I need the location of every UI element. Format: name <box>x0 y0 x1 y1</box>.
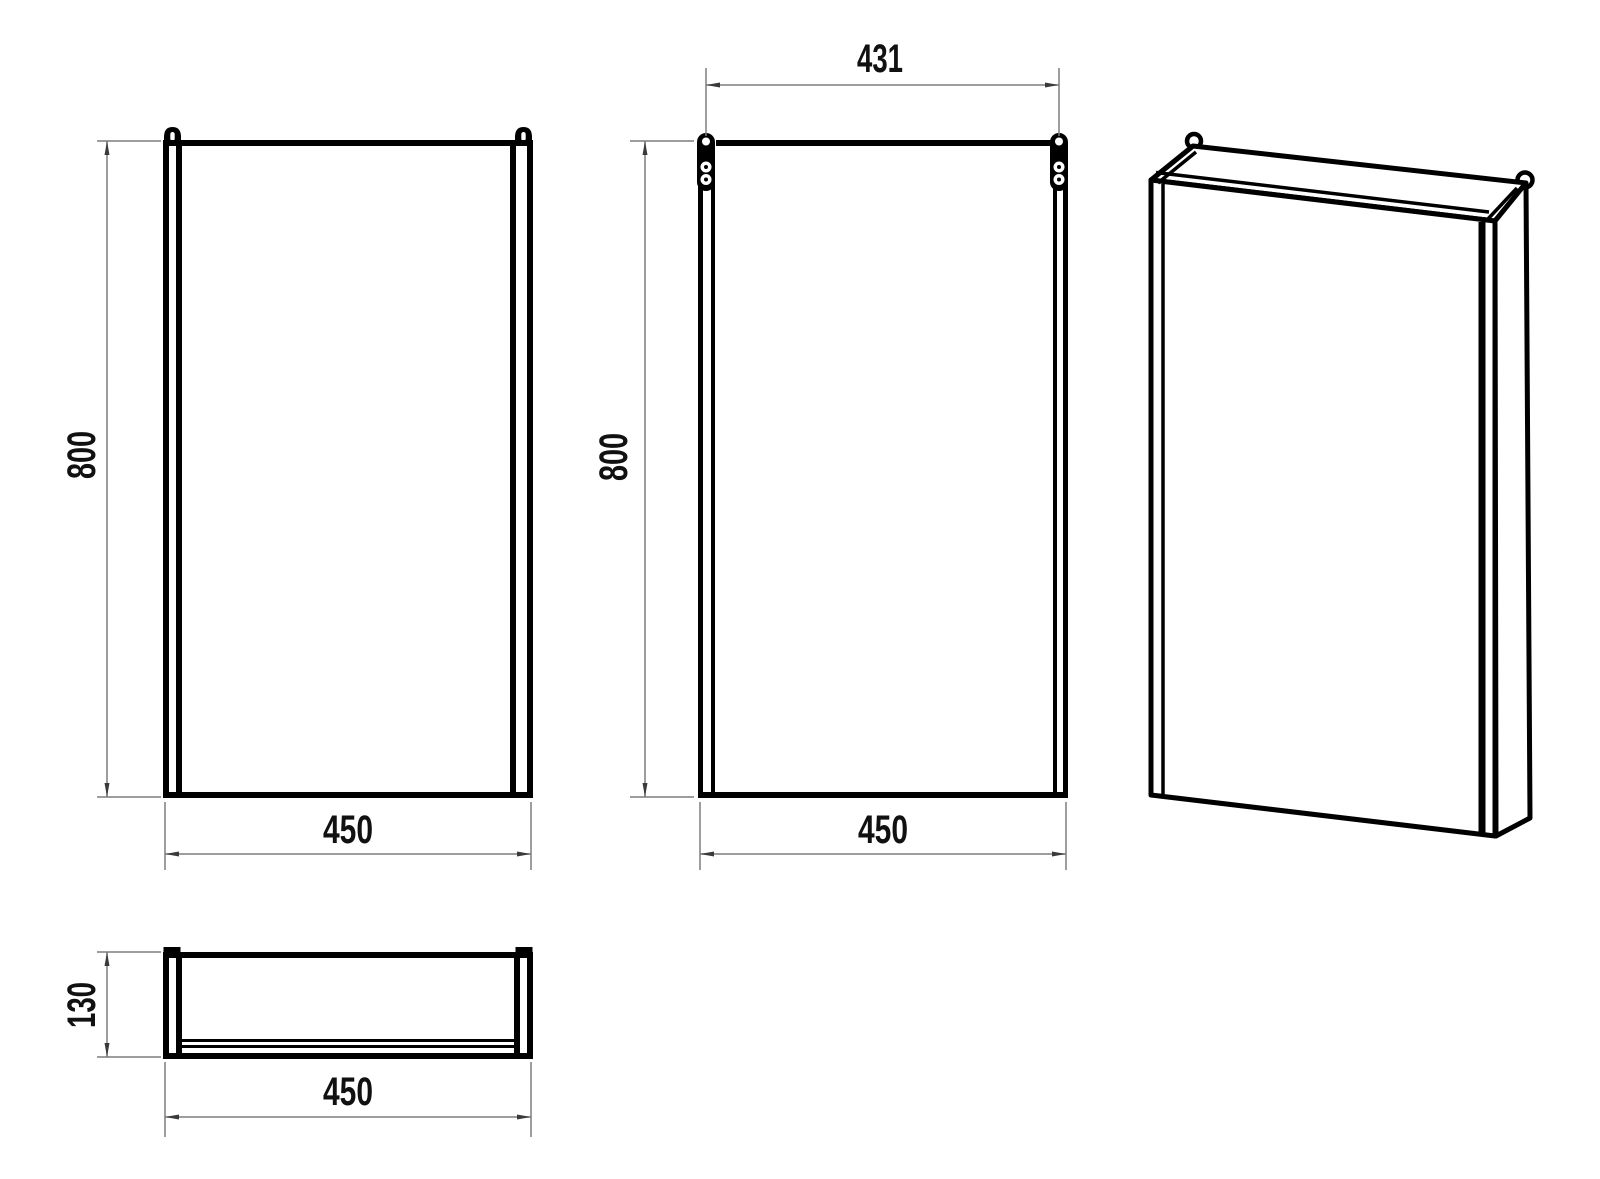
drawing-canvas: 800 450 <box>0 0 1600 1179</box>
front-height-dimension: 800 <box>60 141 161 797</box>
back-height-dimension: 800 <box>592 141 694 797</box>
plan-depth-dimension: 130 <box>60 952 161 1057</box>
back-width-dimension: 450 <box>700 802 1066 870</box>
hanger-loop-slot <box>521 132 525 141</box>
plan-width-label: 450 <box>323 1070 373 1114</box>
cabinet-technical-drawing: 800 450 <box>0 0 1600 1179</box>
front-height-label: 800 <box>60 431 104 479</box>
perspective-front-face <box>1151 180 1495 836</box>
perspective-side-face <box>1495 183 1530 836</box>
front-width-dimension: 450 <box>165 802 531 870</box>
back-height-label: 800 <box>592 433 636 481</box>
mounting-bracket-right <box>1050 133 1068 191</box>
plan-view: 130 450 <box>60 947 533 1137</box>
front-width-label: 450 <box>323 808 373 852</box>
mounting-bracket-left <box>697 133 715 191</box>
back-view: 431 800 450 <box>592 37 1068 870</box>
back-width-label: 450 <box>858 808 908 852</box>
plan-width-dimension: 450 <box>165 1062 531 1137</box>
back-hanger-spacing-label: 431 <box>857 37 903 81</box>
hanger-loop-slot <box>170 132 174 141</box>
plan-depth-label: 130 <box>60 982 104 1028</box>
front-view: 800 450 <box>60 127 533 870</box>
perspective-view <box>1151 134 1533 836</box>
back-hanger-spacing-dimension: 431 <box>706 37 1059 136</box>
